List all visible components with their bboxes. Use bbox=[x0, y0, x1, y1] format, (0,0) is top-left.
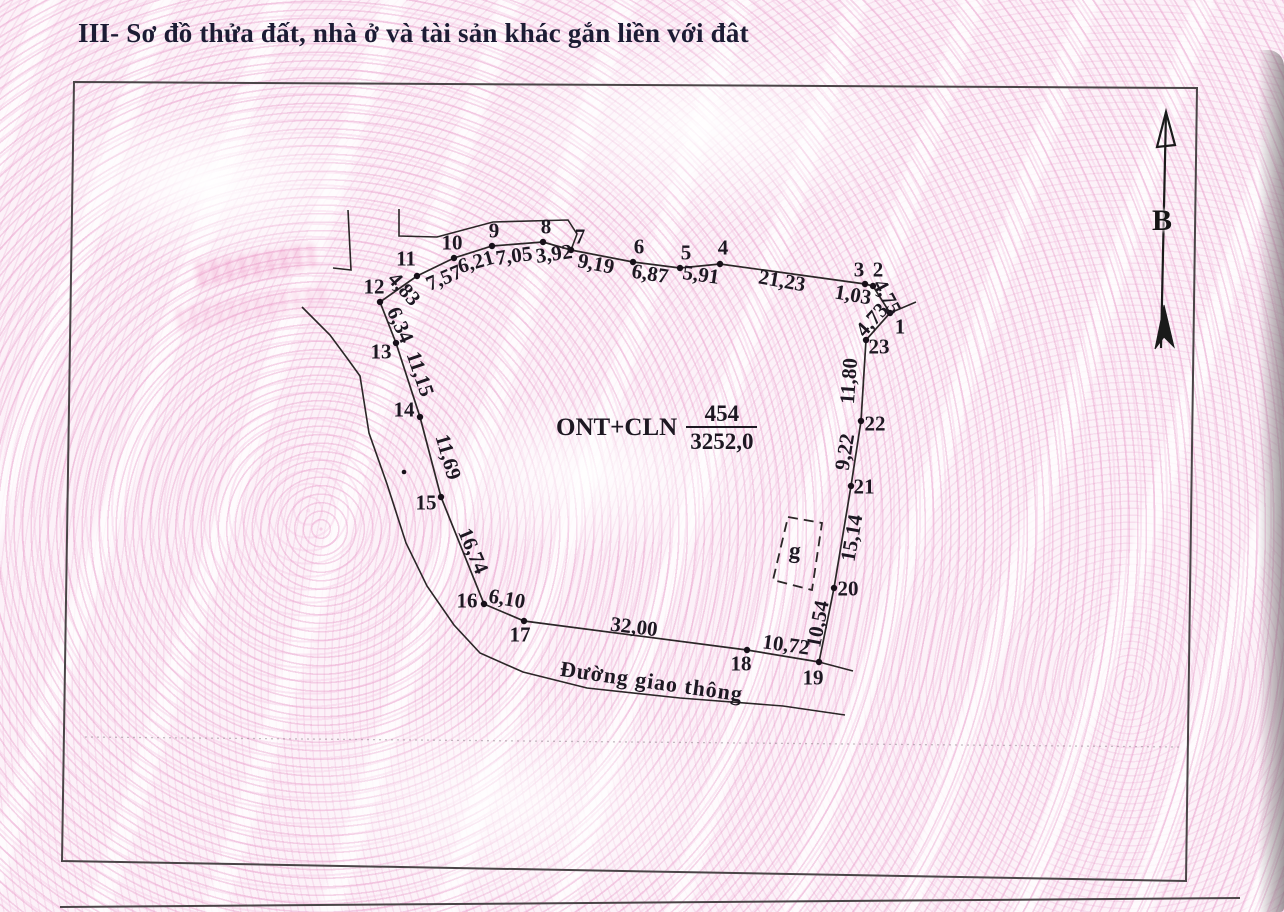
vertex-dot bbox=[858, 418, 864, 424]
faint-fold-line bbox=[85, 737, 1180, 747]
vertex-number: 15 bbox=[416, 493, 437, 514]
vertex-number: 17 bbox=[510, 625, 531, 646]
edge-length-label: 9,22 bbox=[832, 432, 858, 472]
vertex-number: 3 bbox=[854, 260, 865, 281]
vertex-number: 13 bbox=[371, 342, 392, 363]
north-arrow-fletch-icon bbox=[1155, 305, 1174, 349]
vertex-number: 7 bbox=[575, 227, 586, 248]
edge-length-label: 3,92 bbox=[534, 241, 573, 267]
vertex-dot bbox=[414, 273, 420, 279]
diagram-border bbox=[62, 82, 1197, 881]
vertex-number: 19 bbox=[803, 668, 824, 689]
vertex-number: 23 bbox=[869, 337, 890, 358]
vertex-number: 8 bbox=[541, 217, 552, 238]
land-use-code: ONT+CLN bbox=[556, 414, 677, 442]
north-label: B bbox=[1152, 204, 1172, 238]
vertex-dot bbox=[831, 585, 837, 591]
vertex-number: 22 bbox=[865, 414, 886, 435]
vertex-number: 1 bbox=[895, 317, 906, 338]
boundary-extension-line bbox=[819, 662, 853, 671]
parcel-diagram bbox=[0, 0, 1284, 912]
next-section-border bbox=[60, 898, 1240, 907]
parcel-fraction: 454 3252,0 bbox=[686, 402, 757, 454]
vertex-number: 9 bbox=[489, 221, 500, 242]
vertex-number: 4 bbox=[718, 238, 729, 259]
scan-edge-shadow bbox=[1258, 50, 1284, 912]
vertex-dot bbox=[816, 659, 822, 665]
vertex-number: 10 bbox=[442, 233, 463, 254]
certificate-page: III- Sơ đồ thửa đất, nhà ở và tài sản kh… bbox=[0, 0, 1284, 912]
road-edge-line bbox=[302, 307, 845, 715]
vertex-dot bbox=[438, 494, 444, 500]
vertex-number: 20 bbox=[838, 579, 859, 600]
edge-length-label: 32,00 bbox=[609, 614, 658, 641]
edge-length-label: 7,05 bbox=[494, 243, 533, 269]
stray-dot bbox=[402, 470, 407, 475]
edge-length-label: 11,80 bbox=[837, 357, 861, 404]
edge-length-label: 6,87 bbox=[630, 261, 670, 287]
vertex-number: 2 bbox=[873, 260, 884, 281]
vertex-dot bbox=[377, 299, 383, 305]
parcel-area: 3252,0 bbox=[686, 426, 757, 454]
structure-label: g bbox=[788, 537, 802, 564]
vertex-number: 11 bbox=[396, 249, 416, 270]
adjacent-parcel-line bbox=[333, 210, 351, 270]
vertex-number: 6 bbox=[634, 237, 645, 258]
vertex-number: 16 bbox=[457, 591, 478, 612]
vertex-dot bbox=[417, 414, 423, 420]
edge-length-label: 5,91 bbox=[681, 262, 720, 288]
land-use-label: ONT+CLN 454 3252,0 bbox=[556, 402, 757, 454]
parcel-number: 454 bbox=[699, 402, 746, 426]
vertex-number: 12 bbox=[364, 277, 385, 298]
vertex-number: 18 bbox=[731, 654, 752, 675]
vertex-number: 14 bbox=[394, 400, 415, 421]
vertex-number: 21 bbox=[854, 477, 875, 498]
